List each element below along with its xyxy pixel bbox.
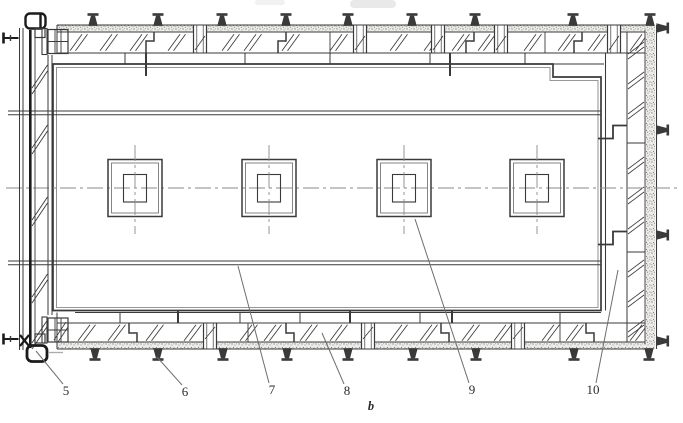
figure-page: 5678910 b xyxy=(0,0,683,423)
callout-10: 10 xyxy=(587,382,600,397)
figure-caption: b xyxy=(368,399,374,413)
callout-labels: 5678910 xyxy=(36,219,618,399)
callout-7: 7 xyxy=(269,382,276,397)
callout-5: 5 xyxy=(63,383,70,398)
formwork-plan-drawing: 5678910 b xyxy=(0,0,683,423)
columns-group xyxy=(6,145,678,234)
scan-artifact xyxy=(255,0,285,5)
callout-6: 6 xyxy=(182,384,189,399)
scan-artifacts xyxy=(255,0,396,8)
scan-artifact xyxy=(350,0,396,8)
left-gate-assembly xyxy=(4,14,69,362)
slab-interior xyxy=(8,53,627,311)
callout-9: 9 xyxy=(469,382,476,397)
callout-8: 8 xyxy=(344,383,351,398)
